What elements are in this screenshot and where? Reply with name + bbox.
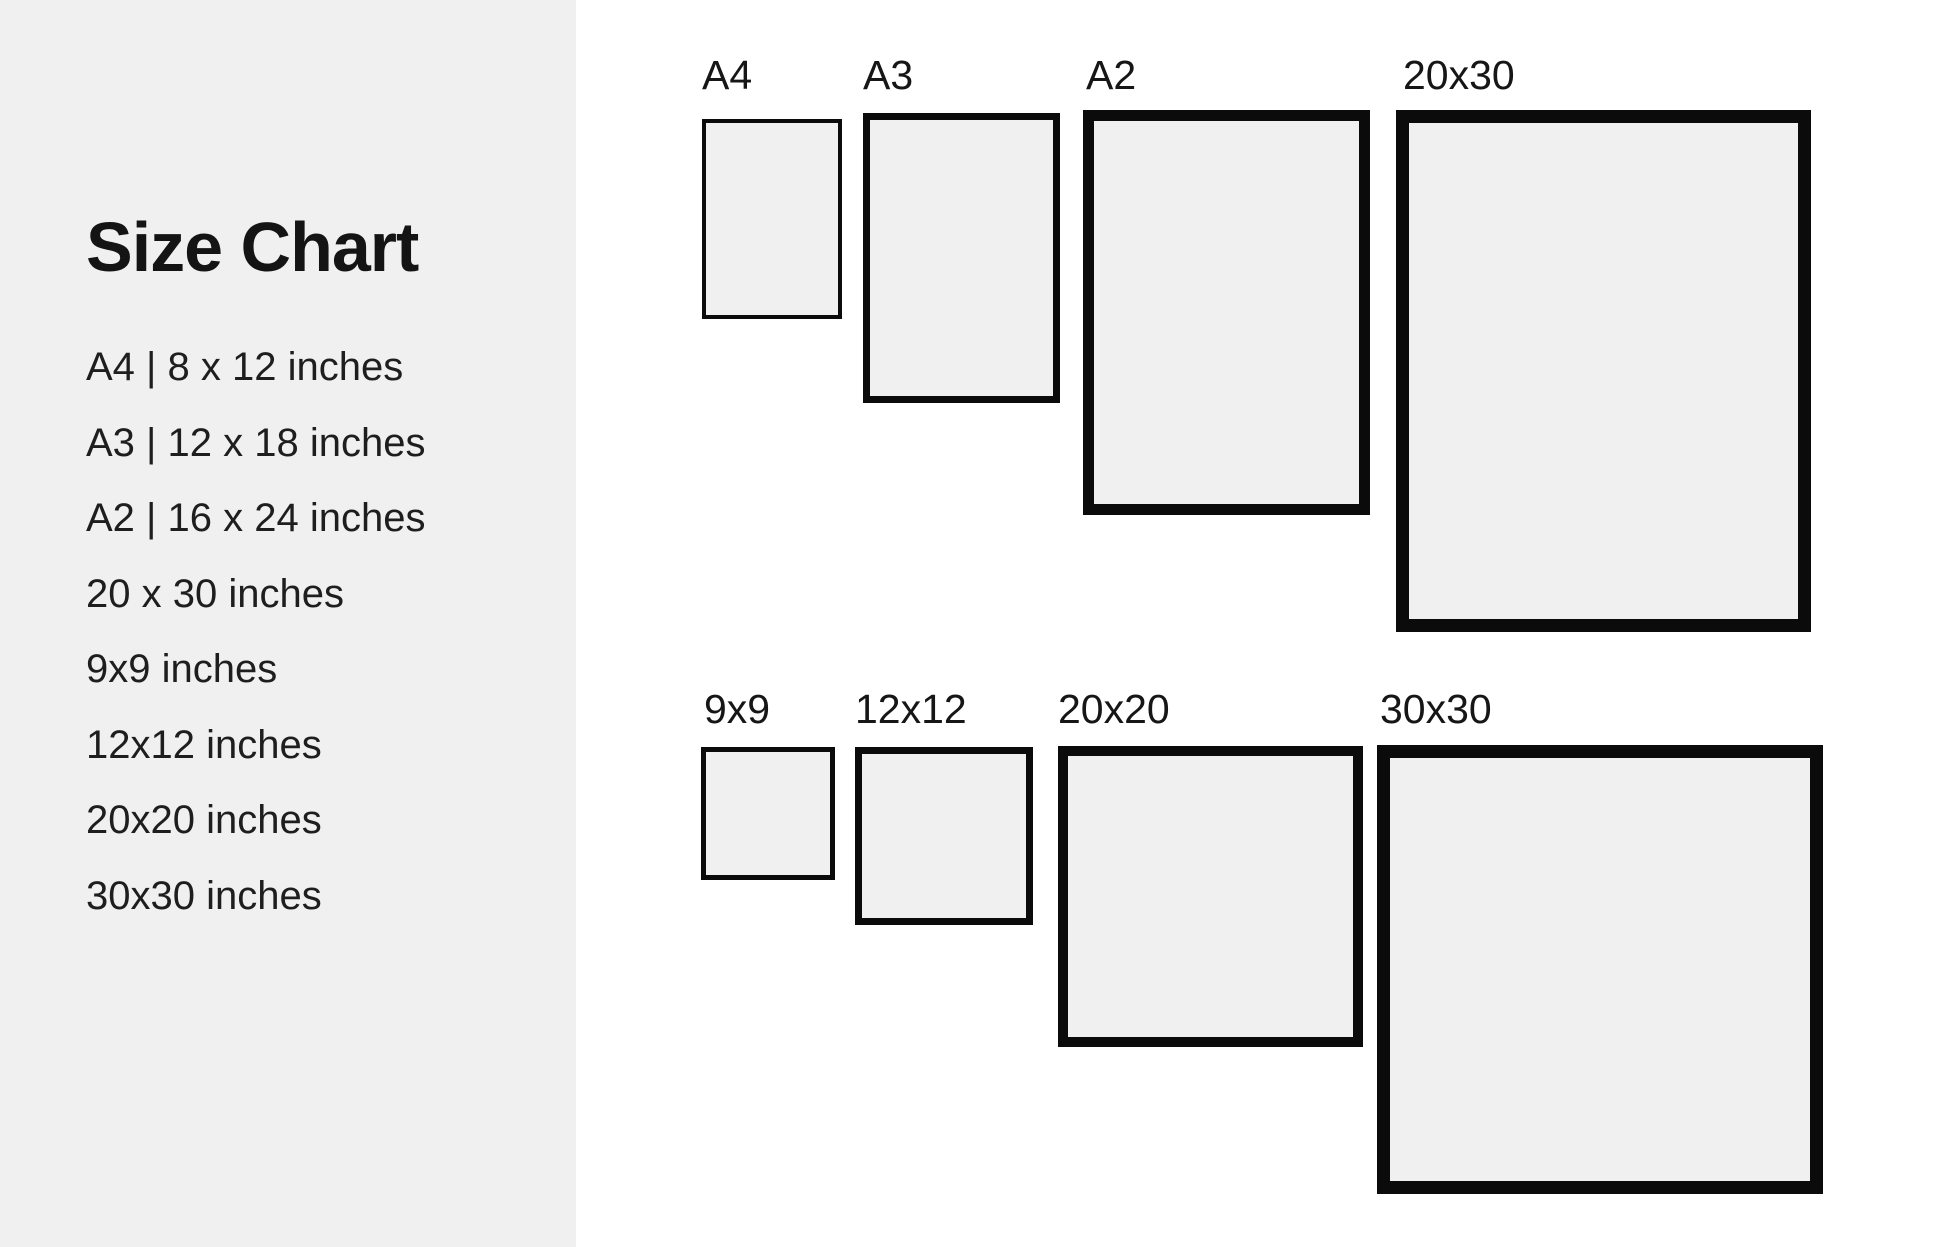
size-list-item: 30x30 inches — [86, 859, 426, 935]
poster-20x20 — [1058, 746, 1363, 1047]
size-list-item: 20x20 inches — [86, 783, 426, 859]
poster-label-30x30: 30x30 — [1380, 689, 1492, 730]
sidebar: Size Chart A4 | 8 x 12 inchesA3 | 12 x 1… — [0, 0, 576, 1247]
size-list-item: A4 | 8 x 12 inches — [86, 330, 426, 406]
poster-A3 — [863, 113, 1060, 403]
size-list: A4 | 8 x 12 inchesA3 | 12 x 18 inchesA2 … — [86, 330, 426, 934]
poster-A2 — [1083, 110, 1370, 515]
poster-30x30 — [1377, 745, 1823, 1194]
poster-label-9x9: 9x9 — [704, 689, 770, 730]
size-list-item: 9x9 inches — [86, 632, 426, 708]
poster-12x12 — [855, 747, 1033, 925]
poster-label-A2: A2 — [1086, 55, 1136, 96]
poster-label-20x20: 20x20 — [1058, 689, 1170, 730]
size-chart-canvas: Size Chart A4 | 8 x 12 inchesA3 | 12 x 1… — [0, 0, 1946, 1247]
poster-label-A3: A3 — [863, 55, 913, 96]
poster-label-A4: A4 — [702, 55, 752, 96]
size-list-item: 12x12 inches — [86, 708, 426, 784]
page-title: Size Chart — [86, 212, 418, 282]
size-list-item: A2 | 16 x 24 inches — [86, 481, 426, 557]
size-list-item: A3 | 12 x 18 inches — [86, 406, 426, 482]
poster-20x30 — [1396, 110, 1811, 632]
poster-9x9 — [701, 747, 835, 880]
poster-A4 — [702, 119, 842, 319]
poster-label-12x12: 12x12 — [855, 689, 967, 730]
size-list-item: 20 x 30 inches — [86, 557, 426, 633]
poster-label-20x30: 20x30 — [1403, 55, 1515, 96]
